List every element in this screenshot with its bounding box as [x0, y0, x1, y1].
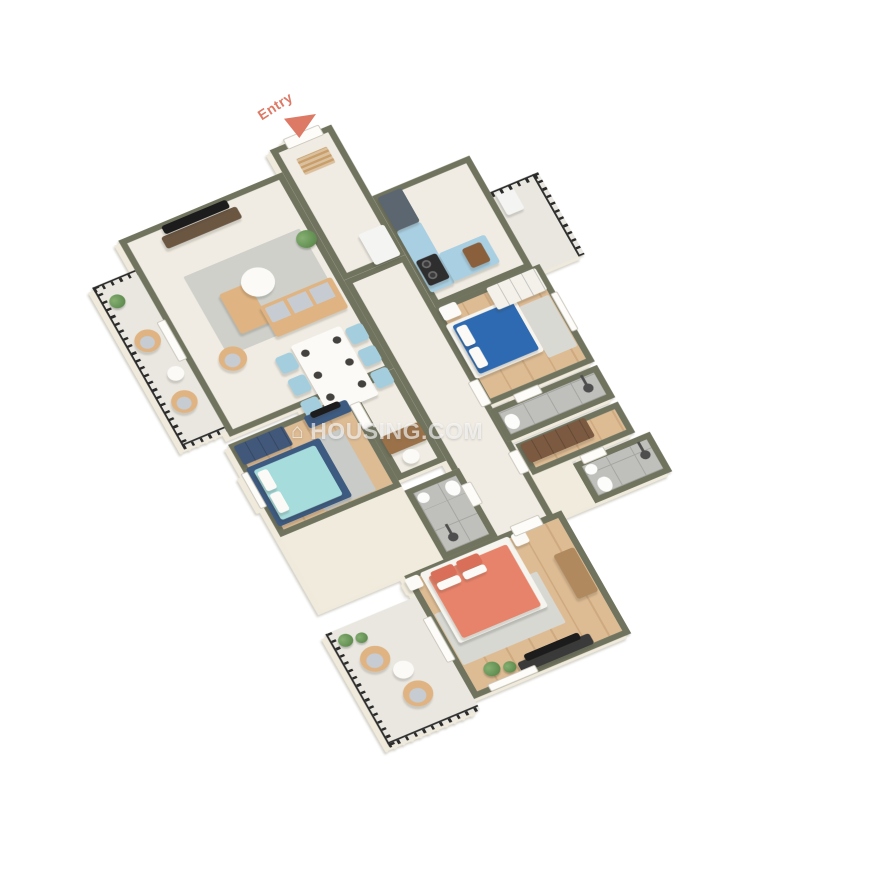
watermark-text: HOUSING.COM	[310, 418, 483, 445]
watermark: ⌂ HOUSING.COM	[291, 418, 483, 445]
house-icon: ⌂	[291, 420, 304, 444]
floorplan-scene	[41, 49, 793, 776]
floorplan-stage: Entry ⌂ HOUSING.COM	[0, 0, 870, 870]
